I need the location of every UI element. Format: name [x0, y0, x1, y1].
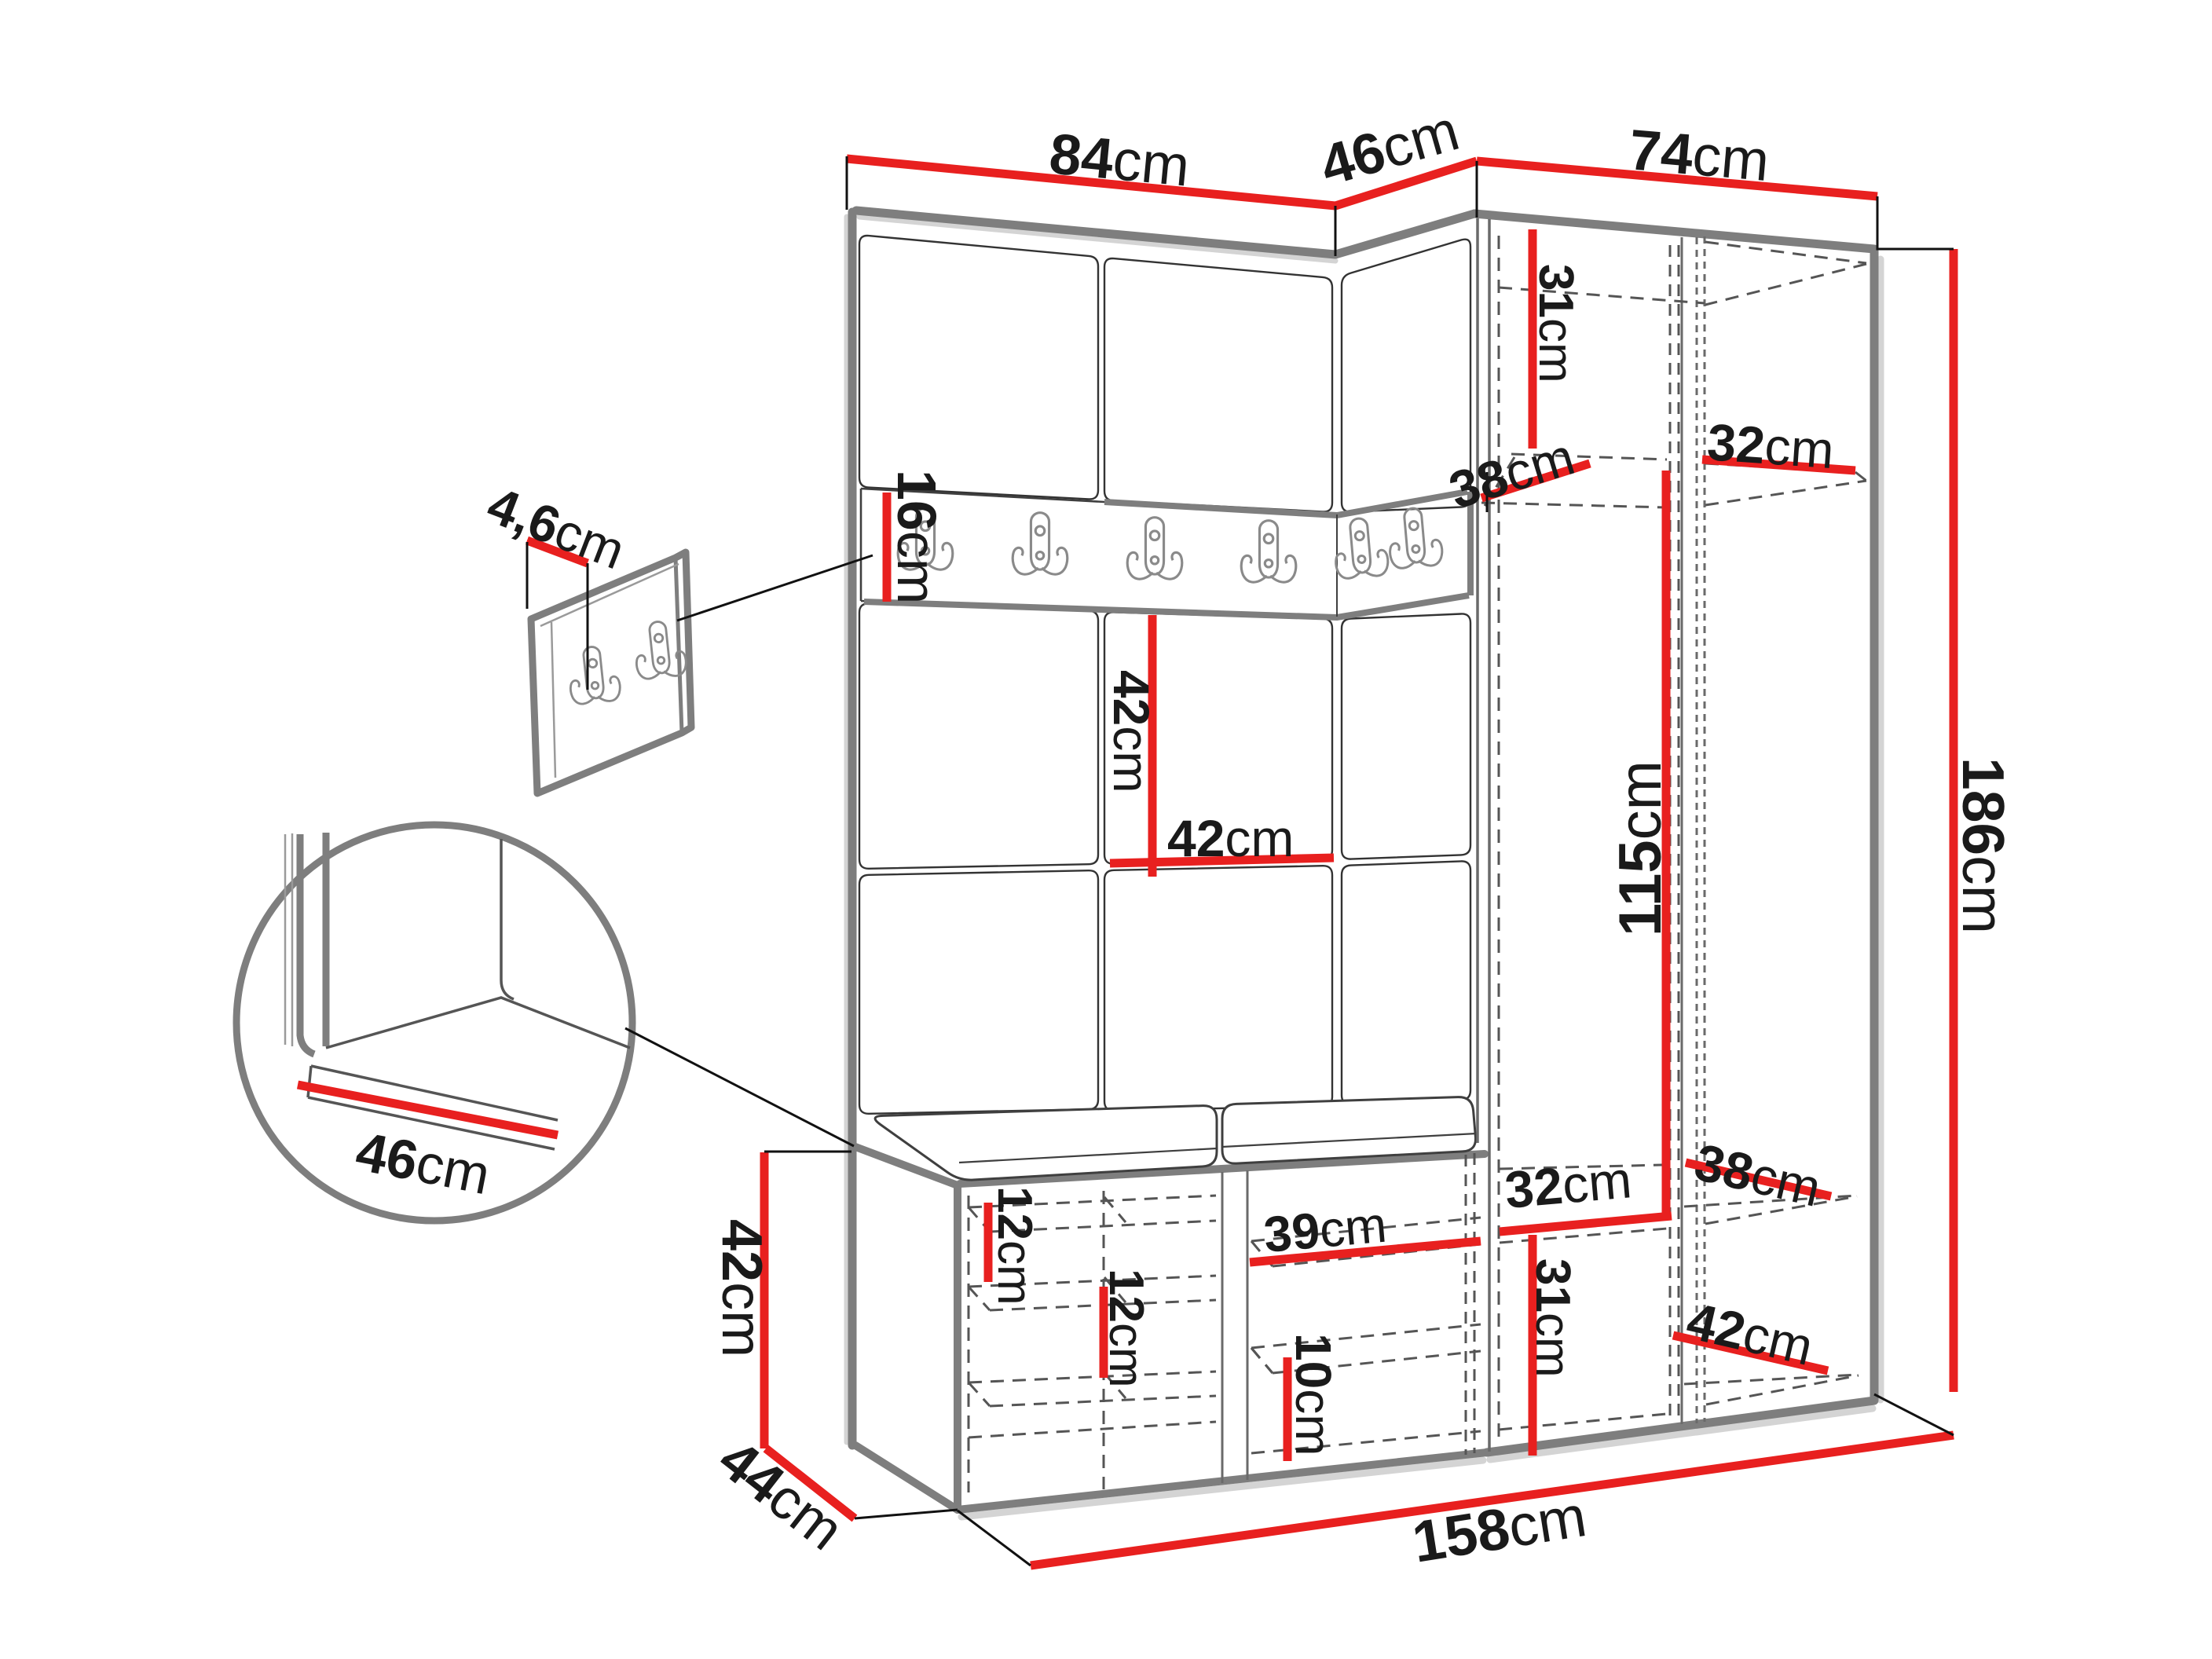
svg-text:31cm: 31cm	[1529, 264, 1583, 383]
svg-text:42cm: 42cm	[1103, 670, 1159, 793]
svg-text:31cm: 31cm	[1525, 1258, 1580, 1378]
svg-text:74cm: 74cm	[1627, 118, 1772, 193]
svg-text:115cm: 115cm	[1607, 760, 1674, 936]
svg-text:186cm: 186cm	[1950, 757, 2016, 934]
svg-text:12cm: 12cm	[987, 1186, 1042, 1306]
svg-text:12cm: 12cm	[1099, 1269, 1153, 1388]
svg-text:32cm: 32cm	[1705, 412, 1836, 479]
svg-text:42cm: 42cm	[710, 1219, 773, 1357]
svg-text:42cm: 42cm	[1167, 809, 1294, 867]
svg-text:84cm: 84cm	[1046, 122, 1192, 198]
svg-text:10cm: 10cm	[1285, 1333, 1342, 1456]
svg-text:16cm: 16cm	[886, 470, 947, 604]
svg-text:32cm: 32cm	[1503, 1150, 1634, 1219]
svg-text:39cm: 39cm	[1262, 1196, 1389, 1263]
